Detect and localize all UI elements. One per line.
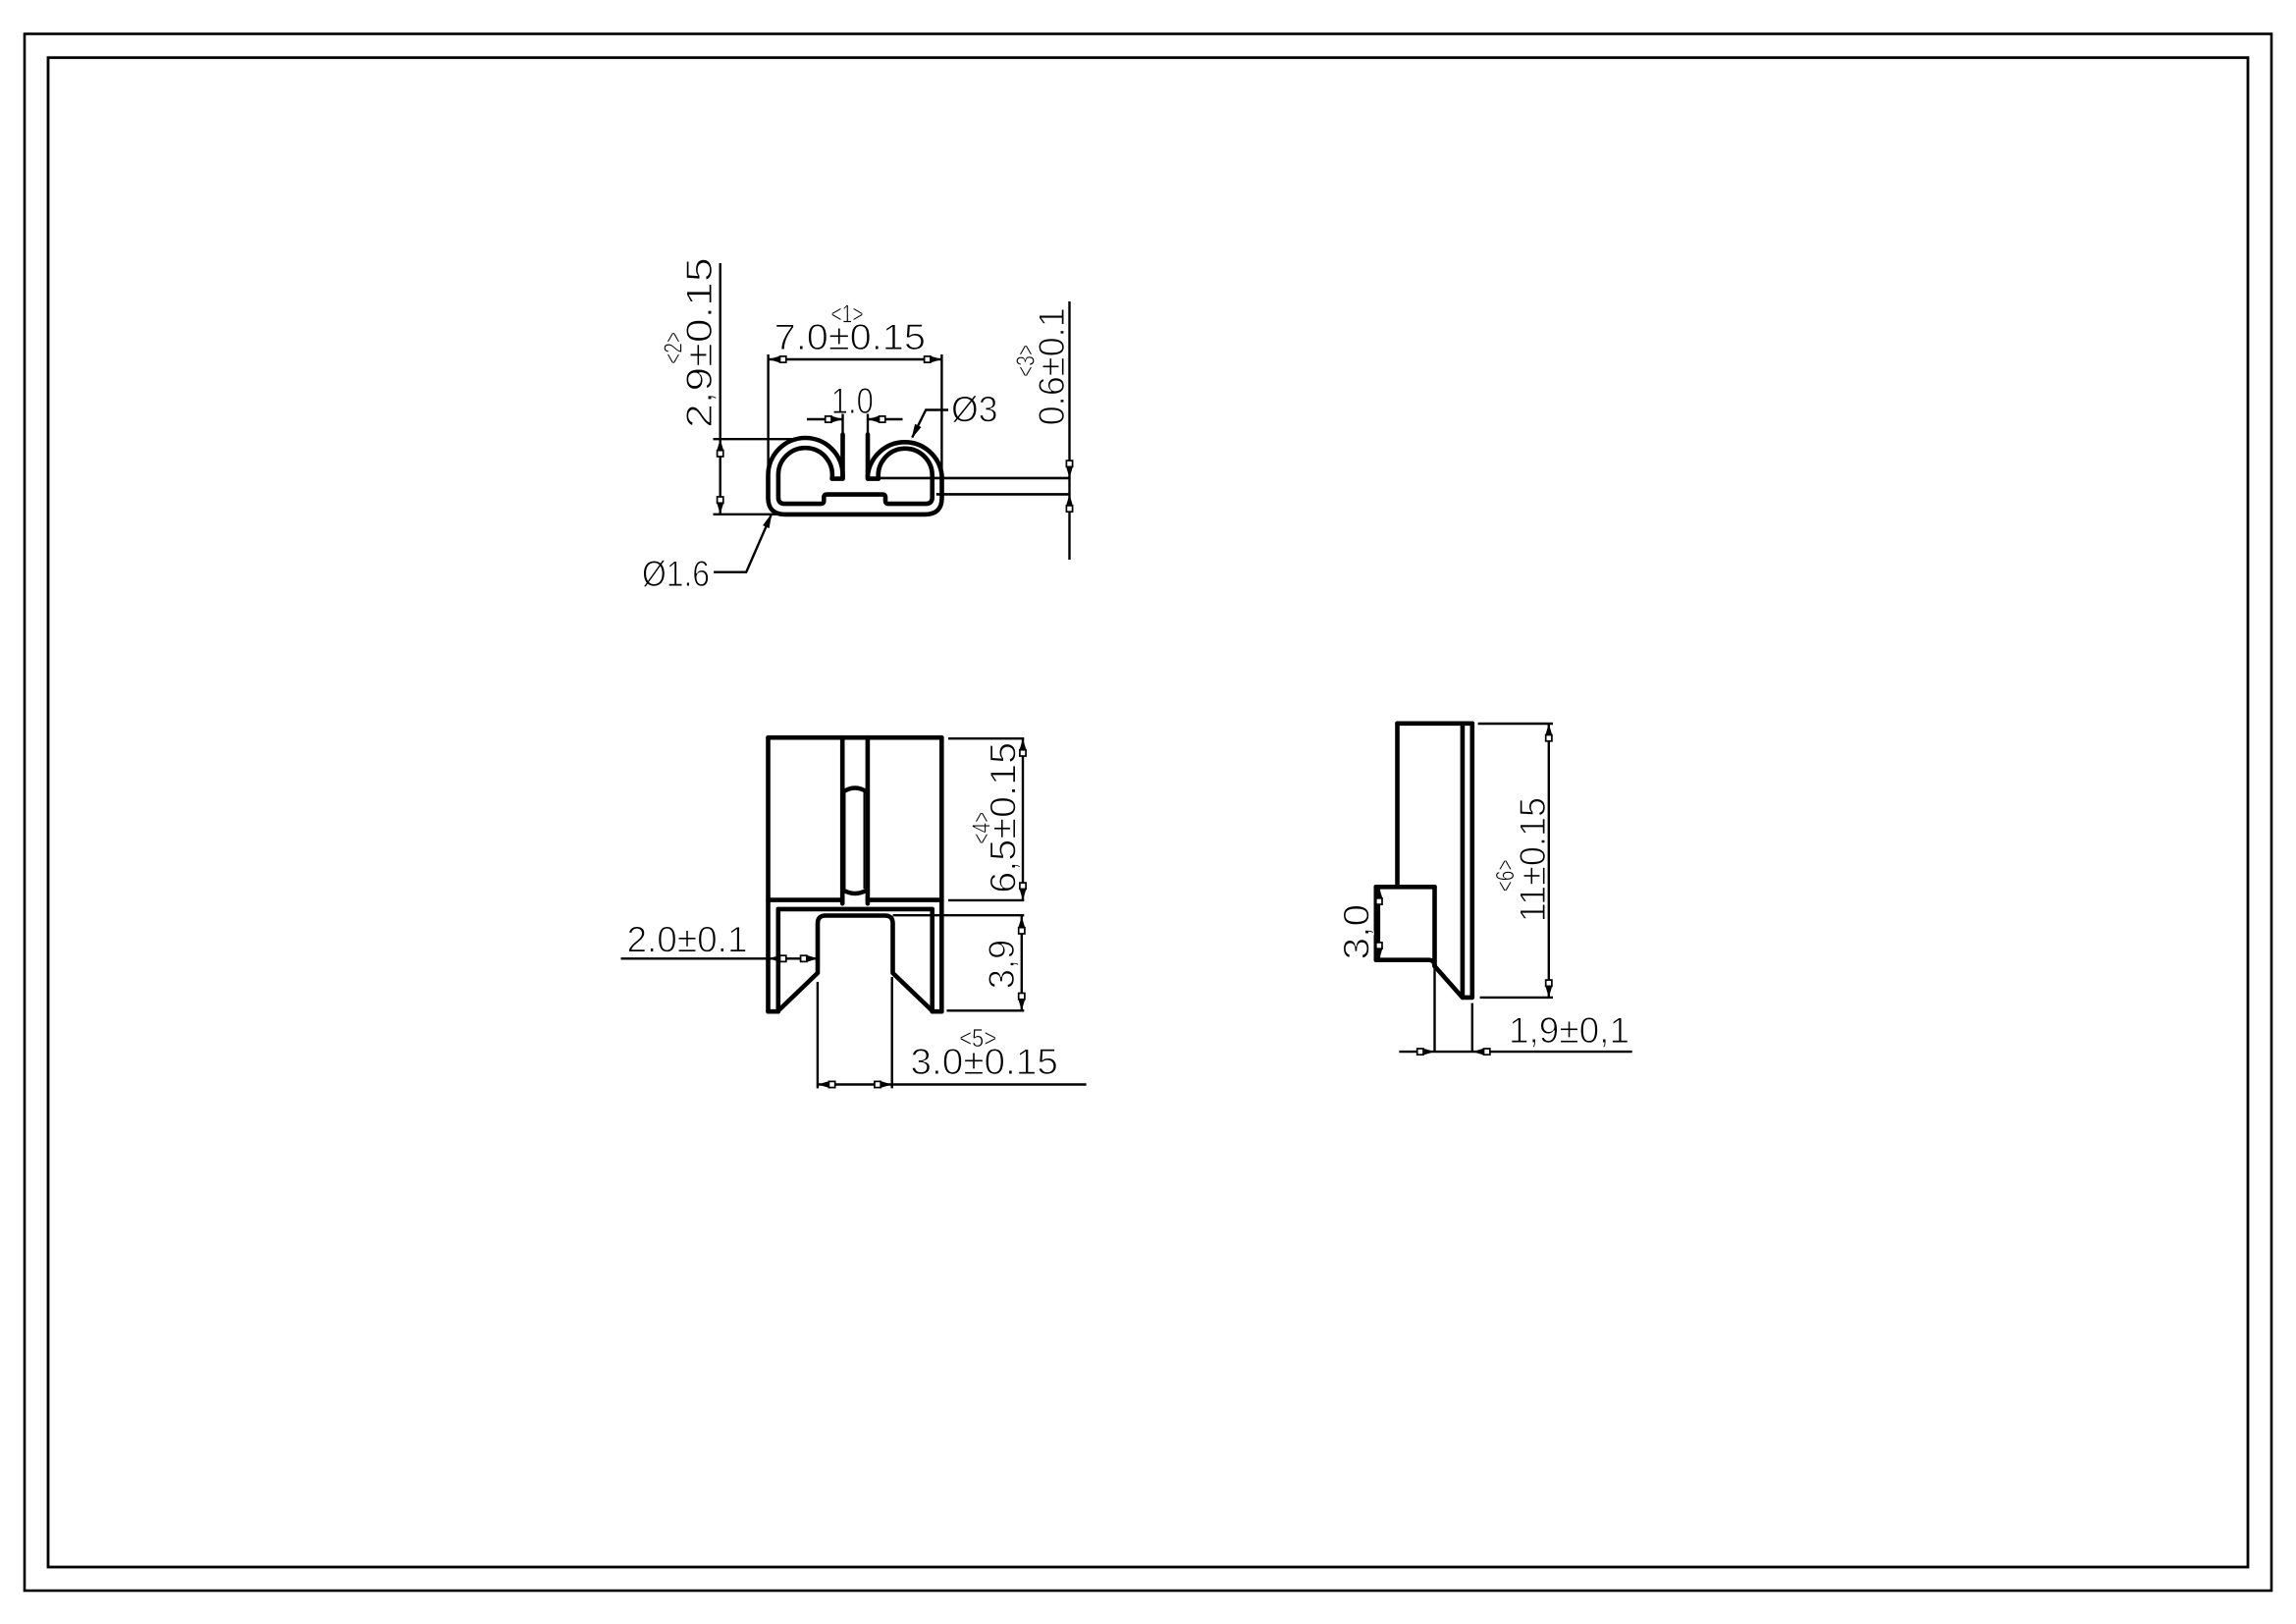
svg-text:3,0: 3,0 xyxy=(1337,904,1377,960)
svg-text:1,9±0,1: 1,9±0,1 xyxy=(1509,1010,1629,1051)
svg-text:Ø1.6: Ø1.6 xyxy=(642,554,710,594)
svg-text:7.0±0.15: 7.0±0.15 xyxy=(774,317,926,357)
svg-text:3.0±0.15: 3.0±0.15 xyxy=(911,1042,1058,1082)
svg-text:11±0.15: 11±0.15 xyxy=(1513,797,1553,922)
svg-text:0.6±0.1: 0.6±0.1 xyxy=(1032,307,1072,425)
svg-text:3,9: 3,9 xyxy=(982,940,1022,990)
svg-text:Ø3: Ø3 xyxy=(951,390,998,430)
svg-text:2,9±0.15: 2,9±0.15 xyxy=(679,257,720,428)
svg-text:2.0±0.1: 2.0±0.1 xyxy=(627,920,748,960)
svg-text:1.0: 1.0 xyxy=(831,381,874,421)
svg-text:6,5±0.15: 6,5±0.15 xyxy=(983,742,1023,893)
